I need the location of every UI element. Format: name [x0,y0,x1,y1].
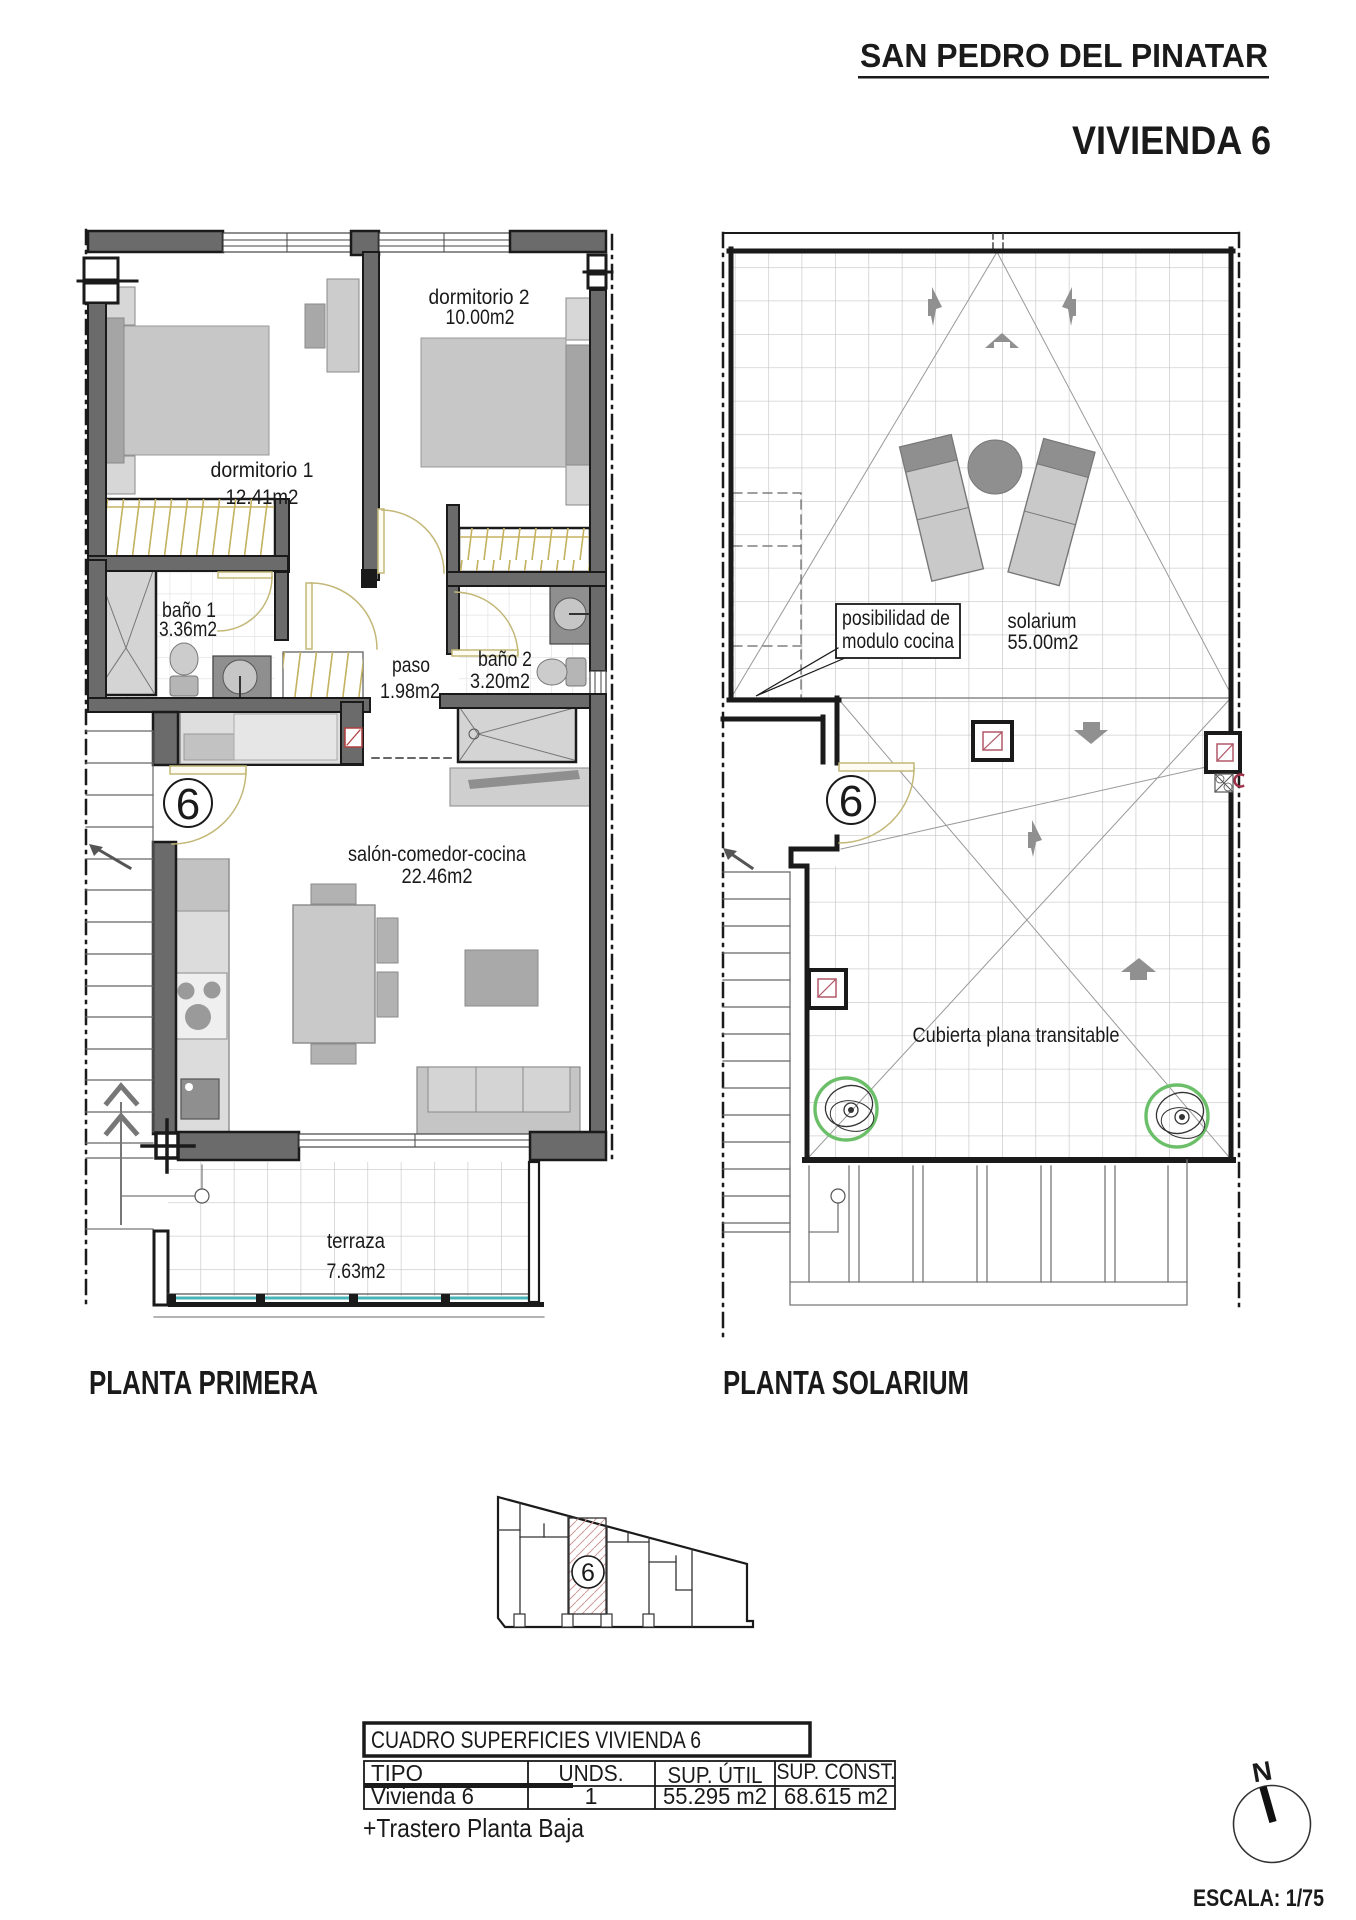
svg-text:ESCALA: 1/75: ESCALA: 1/75 [1193,1885,1324,1912]
svg-text:7.63m2: 7.63m2 [327,1260,386,1283]
svg-text:1: 1 [585,1783,598,1809]
svg-text:VIVIENDA 6: VIVIENDA 6 [1072,119,1271,163]
svg-text:3.20m2: 3.20m2 [470,670,530,693]
svg-text:SUP. CONST.: SUP. CONST. [777,1759,896,1784]
svg-text:terraza: terraza [327,1230,385,1253]
svg-text:22.46m2: 22.46m2 [402,865,473,888]
svg-text:68.615 m2: 68.615 m2 [784,1783,888,1809]
svg-text:Vivienda 6: Vivienda 6 [371,1783,474,1809]
svg-text:SAN PEDRO DEL PINATAR: SAN PEDRO DEL PINATAR [860,37,1268,74]
svg-text:10.00m2: 10.00m2 [446,306,515,329]
svg-text:Cubierta plana transitable: Cubierta plana transitable [913,1024,1120,1047]
svg-text:modulo cocina: modulo cocina [842,630,954,653]
svg-text:paso: paso [392,654,430,677]
svg-text:PLANTA PRIMERA: PLANTA PRIMERA [89,1364,318,1401]
svg-text:PLANTA SOLARIUM: PLANTA SOLARIUM [723,1364,969,1401]
svg-text:solarium: solarium [1008,610,1077,633]
svg-text:CUADRO SUPERFICIES VIVIENDA 6: CUADRO SUPERFICIES VIVIENDA 6 [371,1727,701,1754]
svg-text:+Trastero Planta Baja: +Trastero Planta Baja [363,1813,584,1843]
svg-text:12.41m2: 12.41m2 [226,486,299,509]
svg-text:baño 2: baño 2 [478,648,532,671]
svg-text:6: 6 [839,777,863,826]
svg-text:dormitorio 1: dormitorio 1 [211,459,314,482]
svg-text:1.98m2: 1.98m2 [380,680,440,703]
svg-text:6: 6 [176,780,200,829]
svg-text:6: 6 [581,1559,595,1587]
svg-text:posibilidad de: posibilidad de [842,607,950,630]
svg-text:55.295 m2: 55.295 m2 [663,1783,767,1809]
svg-text:salón-comedor-cocina: salón-comedor-cocina [348,843,526,866]
svg-text:3.36m2: 3.36m2 [159,618,217,641]
svg-text:55.00m2: 55.00m2 [1008,631,1079,654]
